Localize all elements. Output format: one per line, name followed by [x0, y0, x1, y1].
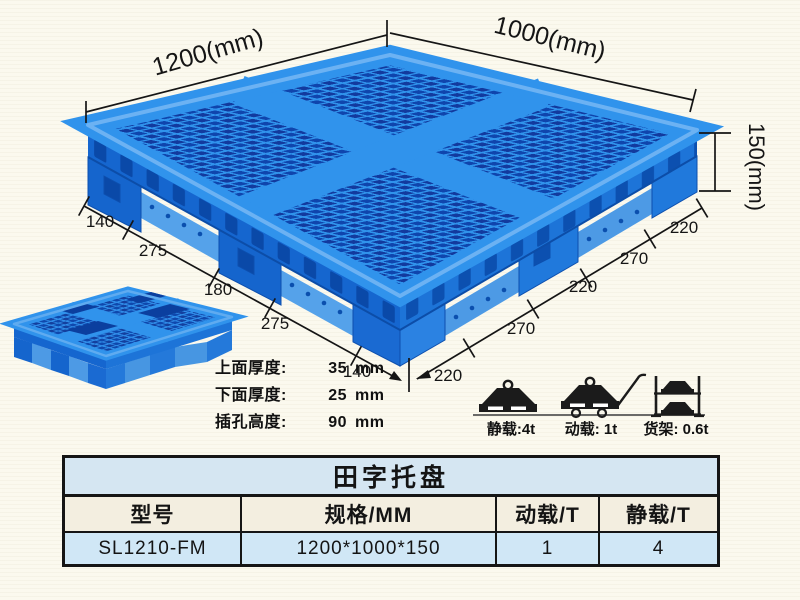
left-dim-2: 180: [204, 280, 232, 299]
right-dim-2: 220: [569, 277, 597, 296]
header-static-load: 静载/T: [600, 497, 717, 531]
note-value: 90: [313, 409, 347, 436]
static-load-label: 静载:4t: [487, 420, 535, 438]
cell-model: SL1210-FM: [65, 533, 242, 564]
dimension-height-150: 150(mm): [699, 123, 769, 211]
rack-load-label: 货架: 0.6t: [643, 420, 708, 438]
cell-dynamic-load: 1: [497, 533, 600, 564]
dynamic-load-icon: [561, 375, 646, 417]
dimension-depth-label: 1000(mm): [491, 11, 608, 66]
spec-table-data-row: SL1210-FM 1200*1000*150 1 4: [65, 533, 717, 564]
note-value: 25: [313, 382, 347, 409]
cell-static-load: 4: [600, 533, 717, 564]
thickness-notes: 上面厚度: 35 mm 下面厚度: 25 mm 插孔高度: 90 mm: [215, 355, 435, 436]
dynamic-load-label: 动载: 1t: [565, 420, 618, 438]
note-top-thickness: 上面厚度: 35 mm: [215, 355, 435, 382]
header-spec: 规格/MM: [242, 497, 497, 531]
note-value: 35: [313, 355, 347, 382]
cell-spec: 1200*1000*150: [242, 533, 497, 564]
note-unit: mm: [355, 355, 384, 382]
dimension-height-label: 150(mm): [744, 123, 769, 211]
header-dynamic-load: 动载/T: [497, 497, 600, 531]
spec-table: 田字托盘 型号 规格/MM 动载/T 静载/T SL1210-FM 1200*1…: [62, 455, 720, 567]
pallet-deck-top: [88, 55, 697, 296]
left-dim-1: 275: [139, 241, 167, 260]
small-pallet-illustration: [14, 291, 232, 389]
rack-load-icon: [651, 376, 704, 416]
note-fork-hole-height: 插孔高度: 90 mm: [215, 409, 435, 436]
pallet-product-sheet: 1200(mm) 1000(mm) 150(mm) 140: [0, 0, 800, 600]
right-dim-4: 220: [434, 366, 462, 385]
right-dim-3: 270: [507, 319, 535, 338]
header-model: 型号: [65, 497, 242, 531]
note-label: 上面厚度:: [215, 355, 307, 382]
note-unit: mm: [355, 382, 384, 409]
static-load-icon: [479, 381, 537, 412]
note-unit: mm: [355, 409, 384, 436]
right-dim-1: 270: [620, 249, 648, 268]
left-dim-0: 140: [86, 212, 114, 231]
note-label: 下面厚度:: [215, 382, 307, 409]
note-bottom-thickness: 下面厚度: 25 mm: [215, 382, 435, 409]
right-dim-0: 220: [670, 218, 698, 237]
spec-table-title: 田字托盘: [65, 458, 717, 497]
dimension-width-label: 1200(mm): [149, 23, 266, 81]
spec-table-header-row: 型号 规格/MM 动载/T 静载/T: [65, 497, 717, 533]
left-dim-3: 275: [261, 314, 289, 333]
load-capacity-icons: 静载:4t 动载: 1t 货架: 0.6t: [473, 375, 709, 438]
note-label: 插孔高度:: [215, 409, 307, 436]
